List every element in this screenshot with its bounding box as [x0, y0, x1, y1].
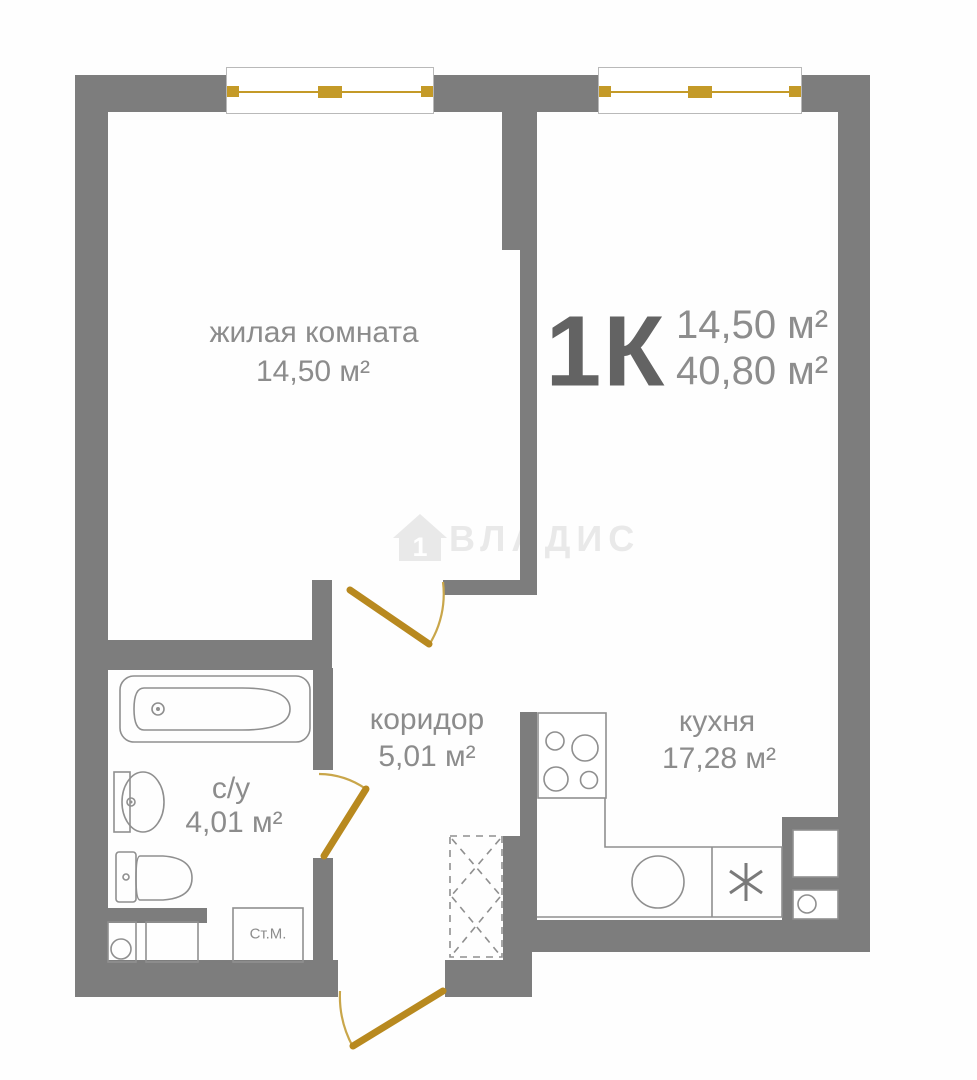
living-room-label: жилая комната — [209, 316, 418, 350]
wall-bathroom-right-a — [313, 668, 333, 770]
wall-bottom-left — [75, 960, 338, 997]
wall-right — [838, 112, 870, 952]
wall-top-middle — [432, 75, 600, 112]
wall-bathroom-top — [108, 640, 332, 670]
floor-plan: 1 ВЛАДИС — [0, 0, 977, 1080]
wall-corridor-top — [443, 580, 537, 595]
apartment-type-label: 1К — [546, 295, 667, 410]
bathroom-area: 4,01 м² — [185, 806, 282, 840]
wall-appliance-niche — [782, 817, 838, 920]
window-kitchen — [598, 67, 802, 114]
wall-kitchen-bottom — [503, 920, 870, 952]
window-frame-cap — [599, 86, 611, 97]
wall-bottom-connector — [503, 952, 532, 997]
window-frame-cap — [318, 86, 342, 98]
apartment-areas: 14,50 м² 40,80 м² — [676, 302, 828, 394]
wall-left — [75, 112, 108, 997]
house-number: 1 — [412, 532, 427, 562]
apartment-room-area: 14,50 м² — [676, 302, 828, 348]
wall-toilet-ledge — [108, 908, 207, 923]
wall-top-right — [800, 75, 870, 112]
wall-top-left — [75, 75, 228, 112]
kitchen-label: кухня — [679, 705, 755, 739]
watermark-text: ВЛАДИС — [449, 518, 640, 560]
wall-divider-lower — [520, 250, 537, 595]
wall-bathroom-right-b — [313, 858, 333, 962]
wall-corridor-stub — [312, 580, 332, 642]
bathroom-label: с/у — [212, 772, 250, 806]
window-frame-cap — [227, 86, 239, 97]
corridor-label: коридор — [370, 703, 484, 737]
corridor-area: 5,01 м² — [378, 740, 475, 774]
washing-machine-label: Ст.М. — [250, 926, 287, 943]
window-frame-cap — [421, 86, 433, 97]
window-frame-cap — [789, 86, 801, 97]
apartment-total-area: 40,80 м² — [676, 348, 828, 394]
living-room-area: 14,50 м² — [256, 355, 370, 389]
window-living-room — [226, 67, 434, 114]
window-frame-cap — [688, 86, 712, 98]
wall-wardrobe-side — [503, 836, 520, 922]
wall-kitchen-divider — [520, 712, 537, 922]
wall-divider-upper — [502, 112, 537, 250]
kitchen-area: 17,28 м² — [662, 742, 776, 776]
